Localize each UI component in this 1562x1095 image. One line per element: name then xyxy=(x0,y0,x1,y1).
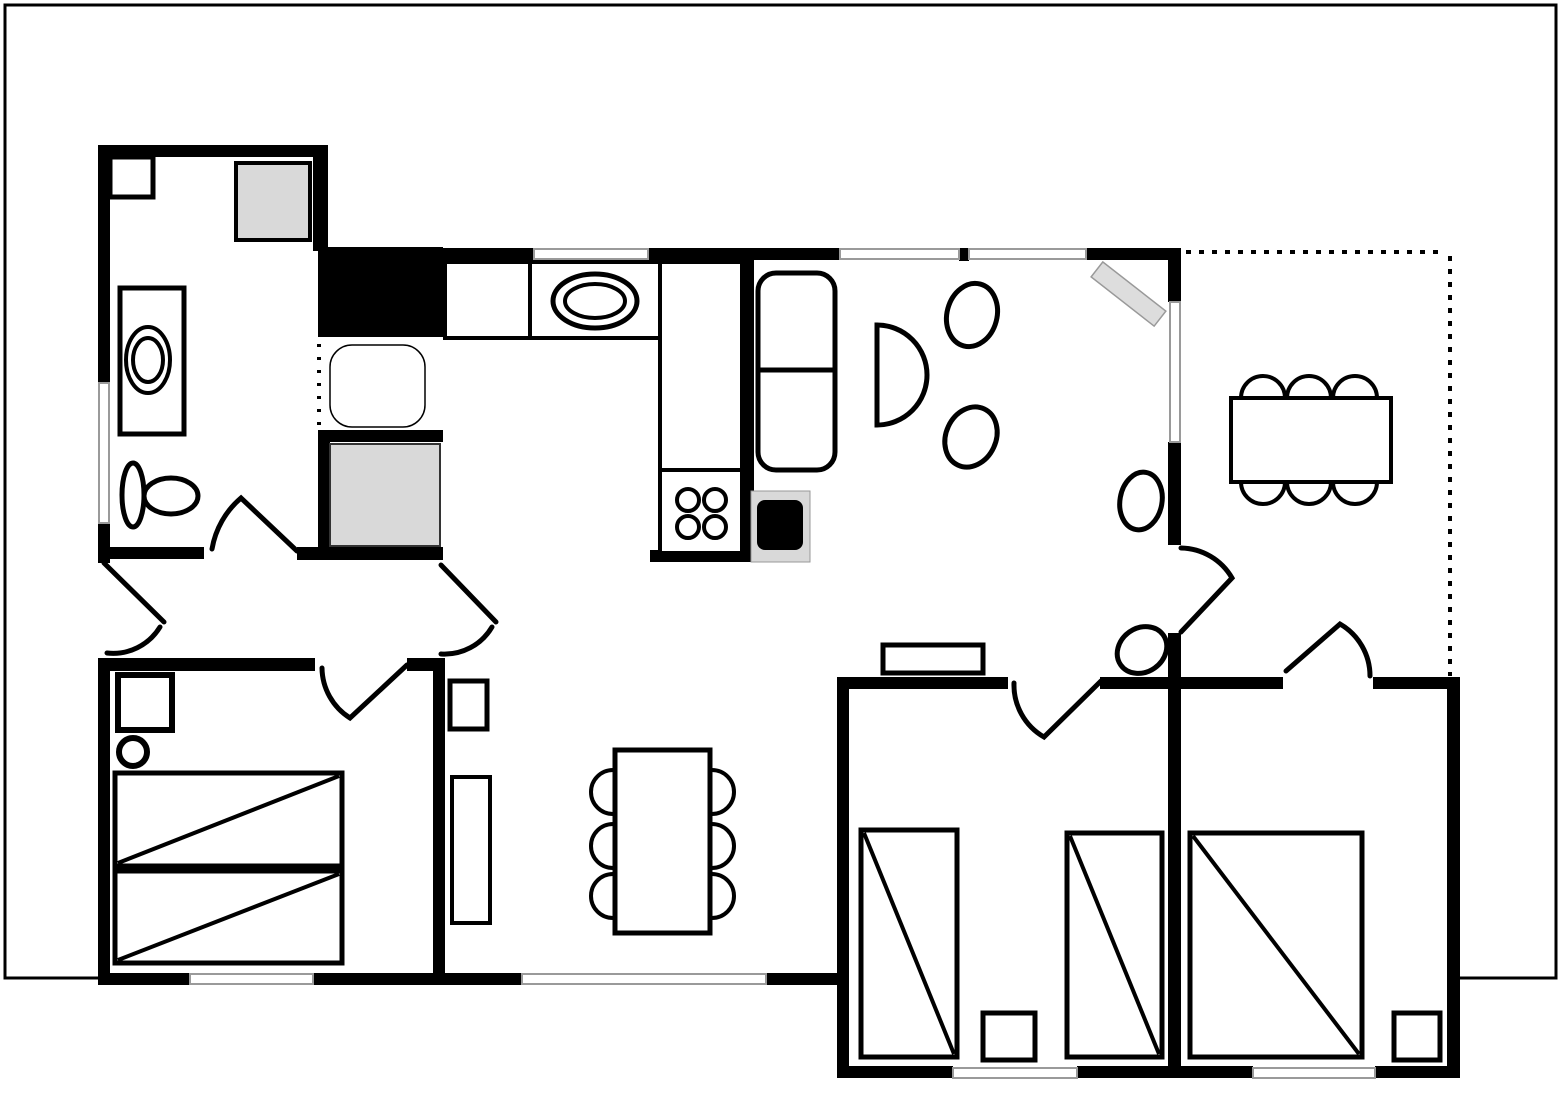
kitchen-kitchen-counter-column xyxy=(660,262,742,470)
hall-shelf-shape xyxy=(450,681,487,729)
wall-segment xyxy=(1168,442,1181,545)
bathroom-washing-machine xyxy=(120,288,184,434)
wall-segment xyxy=(98,658,315,671)
wall-segment xyxy=(98,973,190,985)
kitchen-kitchen-sink xyxy=(330,345,425,427)
wall-segment xyxy=(837,677,1008,689)
wall-segment xyxy=(1181,677,1283,689)
wall-segment xyxy=(849,1066,953,1078)
wall-segment xyxy=(766,973,848,985)
wall-segment xyxy=(1181,1066,1253,1078)
wall-segment xyxy=(1447,677,1460,1078)
wall-segment xyxy=(318,430,443,442)
bedroom-2-nightstand xyxy=(983,1013,1035,1060)
living-room-tv-unit xyxy=(751,491,810,562)
window xyxy=(953,1068,1077,1078)
wall-segment xyxy=(318,247,443,337)
bathroom-cabinet-shape xyxy=(110,157,153,197)
hall-cabinet-shape xyxy=(452,777,490,923)
kitchen-kitchen-appliance xyxy=(330,444,440,546)
bathroom-shower xyxy=(236,163,310,240)
nightstand-shape xyxy=(118,675,172,730)
dining-table-shape xyxy=(615,750,710,933)
window xyxy=(534,249,648,259)
wall-segment xyxy=(98,547,204,559)
wall-segment xyxy=(313,145,328,251)
kitchen-kitchen-counter xyxy=(445,262,660,338)
wall-segment xyxy=(313,973,445,985)
window xyxy=(522,974,766,984)
tv-unit-shape xyxy=(757,500,803,550)
wall-segment xyxy=(1168,250,1181,302)
stove-shape xyxy=(660,470,742,553)
bedroom-2-single-bed-1 xyxy=(861,830,957,1057)
shower-shape xyxy=(236,163,310,240)
bedroom-3-double-bed xyxy=(1190,833,1362,1057)
window xyxy=(840,249,959,259)
kitchen-appliance-shape xyxy=(330,444,440,546)
wall-segment xyxy=(837,677,849,1078)
sideboard-shape xyxy=(883,645,983,673)
window xyxy=(969,249,1086,259)
wall-segment xyxy=(1168,633,1181,678)
wall-segment xyxy=(1373,677,1460,689)
kitchen-stove xyxy=(660,470,742,553)
wall-segment xyxy=(1077,1066,1168,1078)
window xyxy=(1170,302,1180,442)
toilet-shape xyxy=(122,463,144,527)
nightstand-shape xyxy=(1394,1013,1440,1060)
wall-segment xyxy=(1168,677,1181,1078)
wall-segment xyxy=(959,248,969,261)
bathroom-bathroom-cabinet xyxy=(110,157,153,197)
wall-segment xyxy=(433,658,445,985)
kitchen-counter-column-shape xyxy=(660,262,742,470)
bedroom-3-nightstand xyxy=(1394,1013,1440,1060)
wall-segment xyxy=(1086,248,1181,260)
living-room-sideboard xyxy=(883,645,983,673)
terrace-table-shape xyxy=(1231,398,1391,482)
window xyxy=(1253,1068,1375,1078)
floor-plan-page xyxy=(0,0,1562,1095)
hall-hall-shelf xyxy=(450,681,487,729)
bedroom-1-stool xyxy=(119,738,147,766)
bedroom-2-single-bed-2 xyxy=(1067,833,1162,1057)
floor-plan xyxy=(0,0,1562,1095)
wall-segment xyxy=(435,248,534,260)
wall-segment xyxy=(98,658,110,985)
wall-segment xyxy=(1375,1066,1460,1078)
bedroom-1-double-bed xyxy=(115,773,342,963)
hall-hall-cabinet xyxy=(452,777,490,923)
kitchen-sink-shape xyxy=(330,345,425,427)
window xyxy=(99,383,109,523)
bedroom-1-nightstand xyxy=(118,675,172,730)
stool-shape xyxy=(119,738,147,766)
kitchen-counter-shape xyxy=(445,262,530,338)
nightstand-shape xyxy=(983,1013,1035,1060)
wall-segment xyxy=(445,973,522,985)
washing-machine-shape xyxy=(120,288,184,434)
wall-segment xyxy=(318,430,330,560)
living-room-sofa xyxy=(758,273,835,470)
toilet-shape xyxy=(144,478,198,514)
window xyxy=(190,974,313,984)
